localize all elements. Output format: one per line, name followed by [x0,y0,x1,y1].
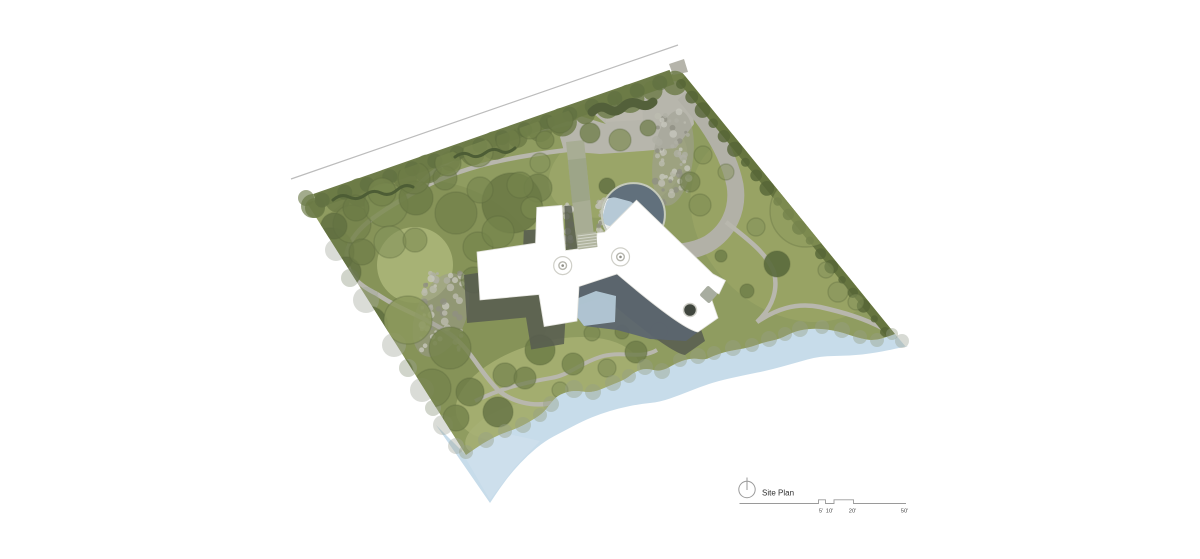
svg-text:10′: 10′ [826,509,834,515]
svg-text:5′: 5′ [819,509,823,515]
svg-text:20′: 20′ [849,509,857,515]
svg-text:Site Plan: Site Plan [762,489,794,498]
svg-text:50′: 50′ [901,509,909,515]
